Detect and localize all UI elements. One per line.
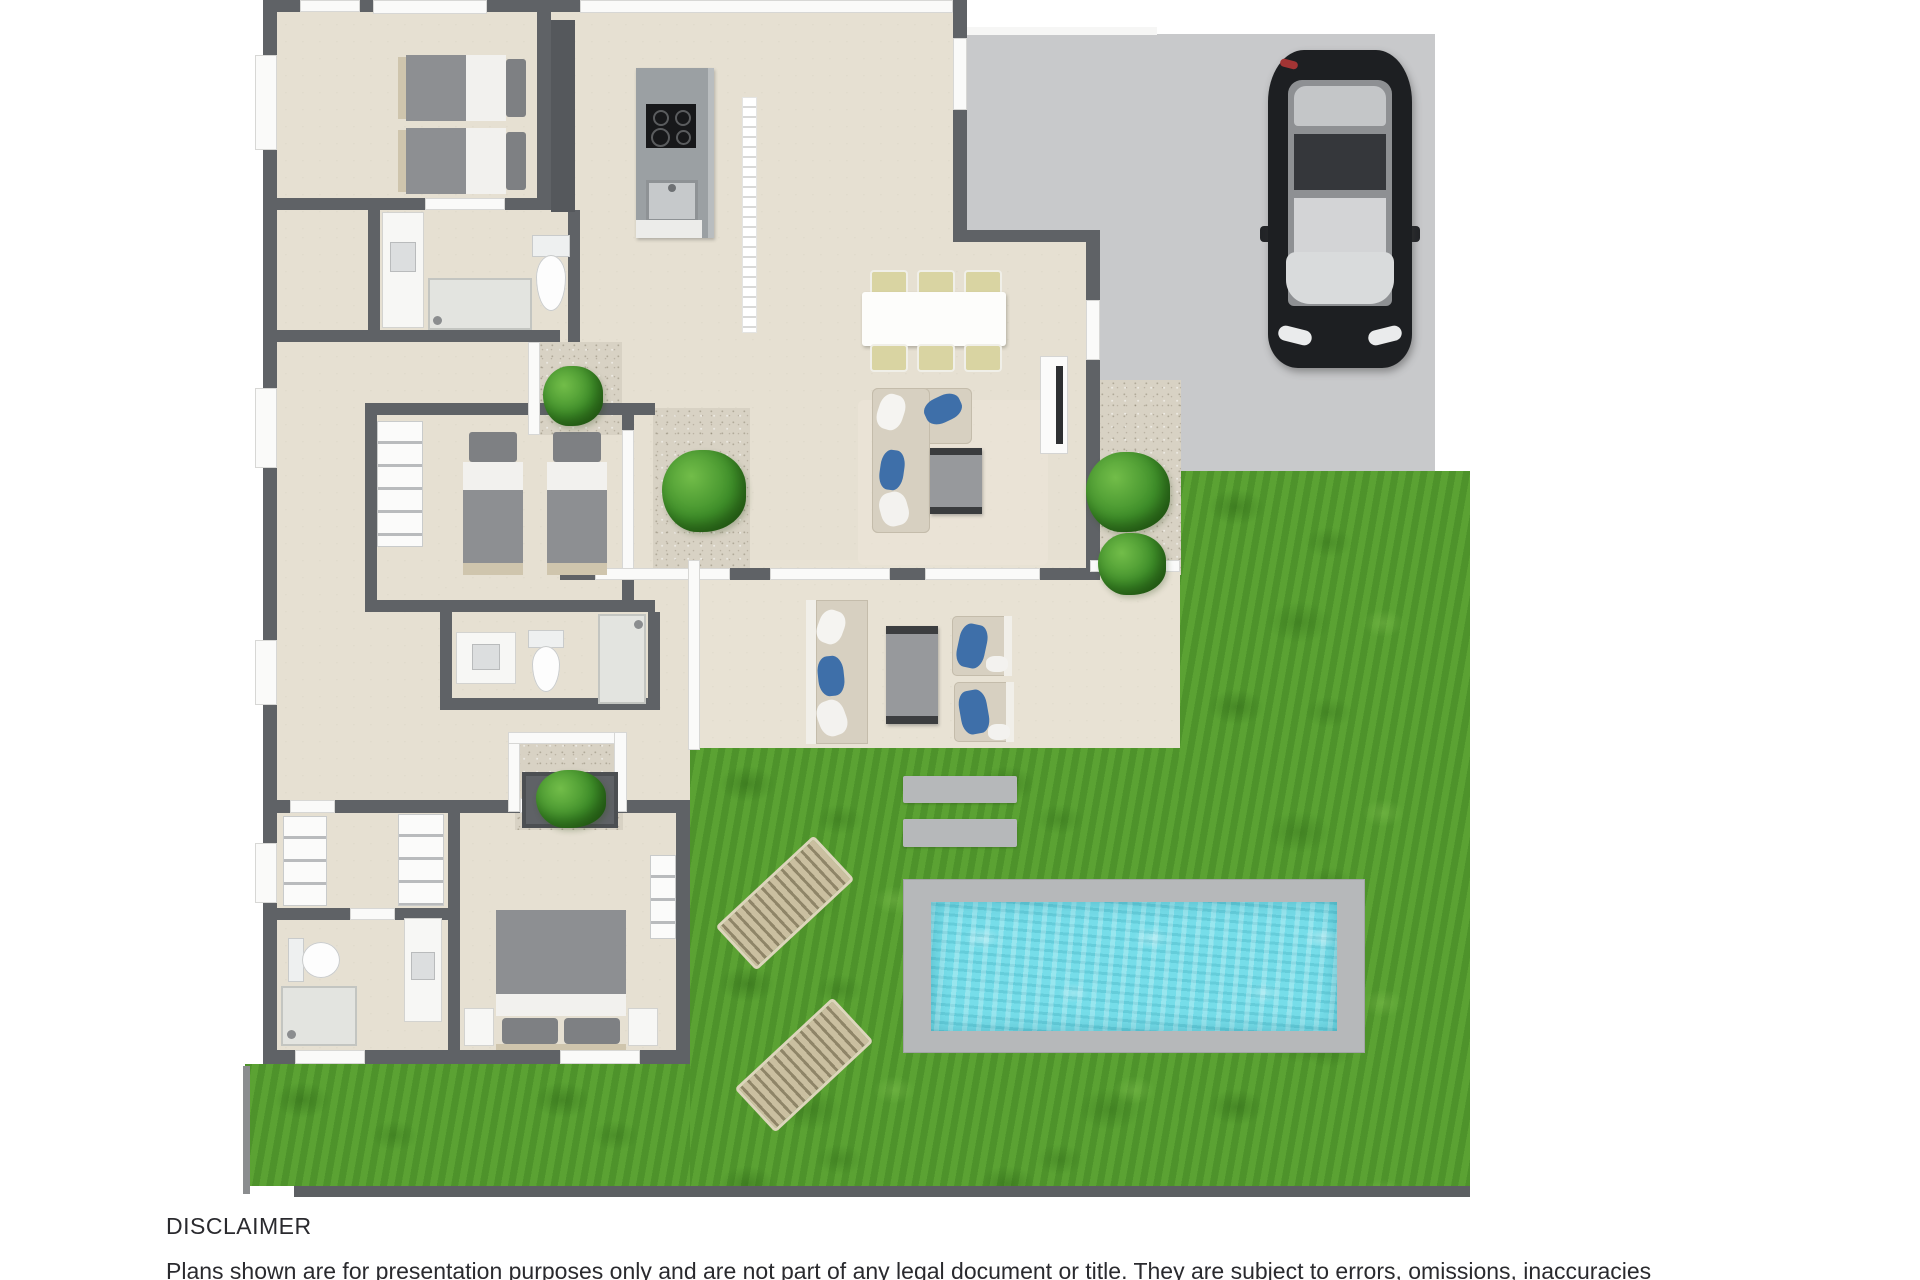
window-sill bbox=[255, 55, 277, 150]
window-sill bbox=[255, 640, 277, 705]
court-wall-top bbox=[508, 732, 626, 744]
toilet bbox=[288, 938, 342, 982]
bedside-table bbox=[628, 1008, 658, 1046]
shower-head bbox=[433, 316, 442, 325]
wardrobe bbox=[377, 421, 423, 547]
bowl bbox=[532, 646, 560, 692]
bed-pillow bbox=[469, 432, 517, 462]
shower bbox=[598, 614, 646, 704]
floor-plan bbox=[0, 0, 1920, 1280]
wall-bed2-right bbox=[537, 0, 551, 210]
lawn-bottom bbox=[245, 1064, 690, 1186]
toilet bbox=[532, 235, 570, 315]
cistern bbox=[532, 235, 570, 257]
stepping-pad bbox=[903, 776, 1017, 803]
burner bbox=[675, 110, 691, 126]
bed-blanket bbox=[406, 55, 466, 121]
garden-bush bbox=[543, 366, 603, 426]
cushion-white bbox=[988, 724, 1010, 740]
single-bed bbox=[398, 55, 532, 121]
kitchen-island bbox=[636, 68, 714, 238]
entry-door bbox=[953, 38, 967, 110]
bed-blanket bbox=[547, 490, 607, 563]
burner bbox=[653, 110, 669, 126]
vanity bbox=[456, 632, 516, 684]
disclaimer-title: DISCLAIMER bbox=[166, 1213, 312, 1240]
bed-blanket bbox=[406, 128, 466, 194]
car-sunroof bbox=[1294, 134, 1386, 190]
car-rear-window bbox=[1294, 86, 1386, 126]
tv bbox=[1056, 366, 1063, 444]
outdoor-sofa bbox=[806, 600, 868, 744]
wall-living-top bbox=[953, 230, 1100, 242]
skylight-window bbox=[373, 0, 487, 14]
shower bbox=[428, 278, 532, 330]
table-trim bbox=[930, 448, 982, 455]
car bbox=[1268, 50, 1412, 368]
bowl bbox=[302, 942, 340, 978]
kitchen-sink bbox=[646, 180, 698, 222]
basin bbox=[390, 242, 416, 272]
low-wall-alfresco bbox=[688, 560, 700, 750]
window-court-top bbox=[528, 342, 540, 435]
bed-footer bbox=[463, 563, 523, 575]
dining-chair bbox=[917, 344, 955, 372]
bed-sheet bbox=[547, 462, 607, 490]
basin bbox=[472, 644, 500, 670]
bed-pillow bbox=[502, 1018, 558, 1044]
bedside-table bbox=[464, 1008, 494, 1046]
vanity bbox=[404, 918, 442, 1022]
bed-footer bbox=[398, 57, 406, 119]
wir-shelving bbox=[283, 816, 327, 906]
table-trim bbox=[886, 716, 938, 724]
lawn-bottom-shadow bbox=[294, 1186, 1470, 1197]
floor-plan-page: DISCLAIMER Plans shown are for presentat… bbox=[0, 0, 1920, 1280]
sliding-door-living bbox=[595, 568, 730, 580]
coffee-table bbox=[930, 448, 982, 514]
burner bbox=[676, 130, 691, 145]
window-sill bbox=[255, 843, 277, 903]
double-bed bbox=[496, 910, 626, 1050]
stepping-pad bbox=[903, 819, 1017, 847]
bed-pillow bbox=[564, 1018, 620, 1044]
basin bbox=[411, 952, 435, 980]
bed-footer bbox=[398, 130, 406, 192]
wall-exterior-left bbox=[263, 0, 277, 1064]
window-living-right bbox=[1086, 300, 1100, 360]
sliding-door-living bbox=[770, 568, 890, 580]
wall-top-white bbox=[580, 0, 953, 13]
bed-blanket bbox=[463, 490, 523, 563]
door-wir bbox=[290, 800, 335, 813]
driveway-top-edge bbox=[967, 27, 1157, 35]
bed-sheet bbox=[463, 462, 523, 490]
wall-bath2-right bbox=[648, 612, 660, 710]
wall-bed3-bottom bbox=[365, 600, 655, 612]
window-bottom bbox=[560, 1050, 640, 1064]
garden-bush bbox=[1086, 452, 1170, 532]
vanity bbox=[382, 212, 424, 328]
sliding-door-living bbox=[925, 568, 1040, 580]
wall-bath1-top bbox=[263, 198, 560, 210]
bed-pillow bbox=[506, 132, 526, 190]
master-robe bbox=[650, 855, 676, 939]
window-bed3 bbox=[622, 430, 634, 580]
bed-sheet bbox=[466, 55, 506, 121]
bed-sheet bbox=[496, 994, 626, 1016]
wir-shelving bbox=[398, 814, 444, 906]
outdoor-armchair bbox=[954, 682, 1014, 742]
driveway-lower bbox=[1181, 380, 1435, 471]
kitchen-cabinet-tall bbox=[551, 20, 575, 212]
burner bbox=[651, 128, 670, 147]
wall-bed3-top bbox=[365, 403, 655, 415]
single-bed bbox=[398, 128, 532, 194]
single-bed bbox=[547, 428, 607, 575]
island-base bbox=[636, 220, 702, 238]
door-bath1 bbox=[425, 198, 505, 210]
lawn-right bbox=[1179, 471, 1470, 1186]
wall-bath2-left bbox=[440, 612, 452, 710]
bed-sheet bbox=[466, 128, 506, 194]
cushion-blue bbox=[954, 622, 991, 671]
bowl bbox=[536, 255, 566, 311]
outdoor-table bbox=[886, 626, 938, 724]
lawn-left-edge bbox=[243, 1066, 250, 1194]
shower bbox=[281, 986, 357, 1046]
toilet bbox=[528, 630, 564, 694]
table-trim bbox=[930, 507, 982, 514]
shower-head bbox=[287, 1030, 296, 1039]
car-windshield bbox=[1286, 252, 1394, 304]
wall-living-right bbox=[1086, 242, 1100, 580]
bed-blanket bbox=[496, 910, 626, 994]
tv-unit bbox=[1040, 356, 1068, 454]
dining-chair bbox=[964, 344, 1002, 372]
garden-bush bbox=[662, 450, 746, 532]
pool-water bbox=[931, 902, 1337, 1031]
disclaimer-body: Plans shown are for presentation purpose… bbox=[166, 1256, 1651, 1280]
court-wall-left bbox=[508, 732, 520, 812]
window bbox=[300, 0, 360, 12]
faucet bbox=[668, 184, 676, 192]
window-sill bbox=[255, 388, 277, 468]
wall-exterior-right-bottom bbox=[676, 813, 690, 1064]
wall-bath1-bottom bbox=[263, 330, 560, 342]
single-bed bbox=[463, 428, 523, 575]
dining-table bbox=[862, 292, 1006, 346]
bed-pillow bbox=[506, 59, 526, 117]
bed-pillow bbox=[553, 432, 601, 462]
window-bottom bbox=[295, 1050, 365, 1064]
wall-bath1-left bbox=[368, 210, 380, 342]
table-trim bbox=[886, 626, 938, 634]
cushion-white bbox=[986, 656, 1008, 672]
dining-chair bbox=[870, 344, 908, 372]
sofa-back bbox=[806, 600, 816, 744]
bed-footer bbox=[547, 563, 607, 575]
door-bath3 bbox=[350, 908, 395, 920]
cooktop bbox=[646, 104, 696, 148]
hall-screen bbox=[743, 98, 756, 332]
cushion-blue bbox=[956, 688, 991, 736]
bed-headboard bbox=[496, 1044, 626, 1050]
wall-bed3-left bbox=[365, 415, 377, 600]
garden-bush bbox=[1098, 533, 1166, 595]
shower-head bbox=[634, 620, 643, 629]
garden-bush bbox=[536, 770, 606, 828]
wall-master-left bbox=[448, 813, 460, 1050]
outdoor-armchair bbox=[952, 616, 1012, 676]
